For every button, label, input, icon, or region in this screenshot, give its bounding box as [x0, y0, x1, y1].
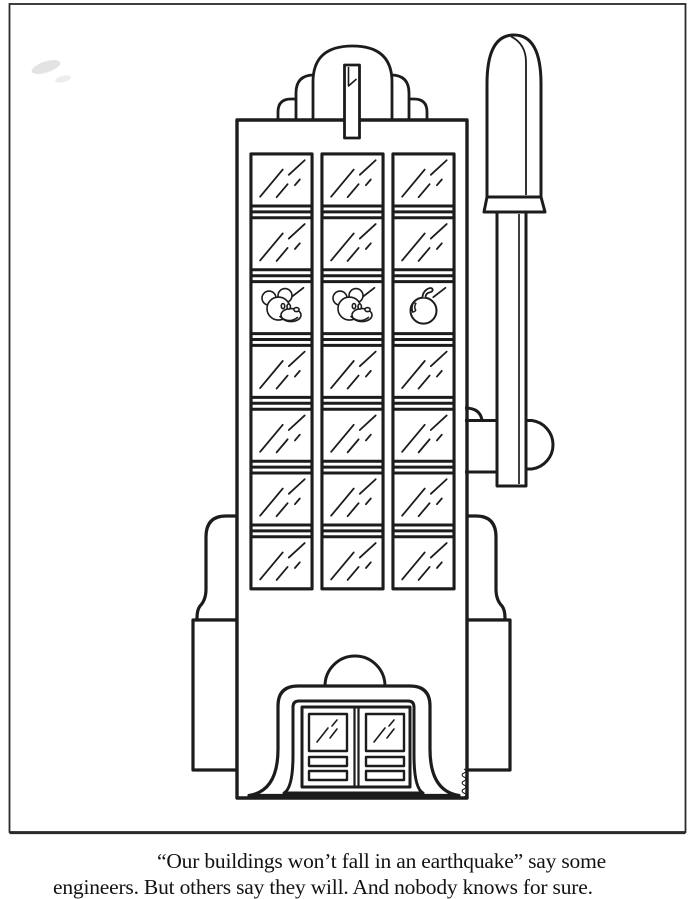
- lever-knob: [487, 35, 541, 197]
- window-cell: [251, 282, 312, 334]
- window-cell: [393, 409, 454, 461]
- door-right-leaf: [366, 714, 404, 780]
- illustration-svg: [0, 0, 693, 899]
- window-cell: [322, 345, 383, 397]
- slot-lever: [465, 35, 553, 486]
- window-cell: [251, 345, 312, 397]
- coin-slot: [345, 65, 360, 138]
- lever-collar: [484, 197, 545, 212]
- left-wing: [193, 516, 237, 770]
- window-cell: [251, 537, 312, 589]
- window-cell: [322, 409, 383, 461]
- caption-line-2: engineers. But others say they will. And…: [53, 875, 653, 899]
- caption-line-1: “Our buildings won’t fall in an earthqua…: [53, 849, 653, 875]
- caption: “Our buildings won’t fall in an earthqua…: [53, 849, 653, 899]
- window-cell: [251, 409, 312, 461]
- double-door: [302, 707, 410, 787]
- right-wing: [465, 516, 510, 770]
- window-cell: [393, 282, 454, 334]
- window-cell: [322, 154, 383, 206]
- window-cell: [322, 218, 383, 270]
- door-left-leaf: [309, 714, 347, 780]
- window-cell: [322, 282, 383, 334]
- window-cell: [251, 473, 312, 525]
- window-cell: [322, 473, 383, 525]
- window-cell: [393, 537, 454, 589]
- window-cell: [393, 473, 454, 525]
- window-column: [322, 154, 383, 589]
- window-cell: [322, 537, 383, 589]
- window-cell: [393, 345, 454, 397]
- scanned-page: “Our buildings won’t fall in an earthqua…: [0, 0, 693, 899]
- window-cell: [393, 218, 454, 270]
- window-column: [393, 154, 454, 589]
- lever-shaft: [497, 212, 526, 486]
- window-cell: [251, 218, 312, 270]
- scan-smudge: [30, 57, 72, 84]
- window-cell: [393, 154, 454, 206]
- window-column: [251, 154, 312, 589]
- window-grid: [251, 154, 454, 589]
- window-cell: [251, 154, 312, 206]
